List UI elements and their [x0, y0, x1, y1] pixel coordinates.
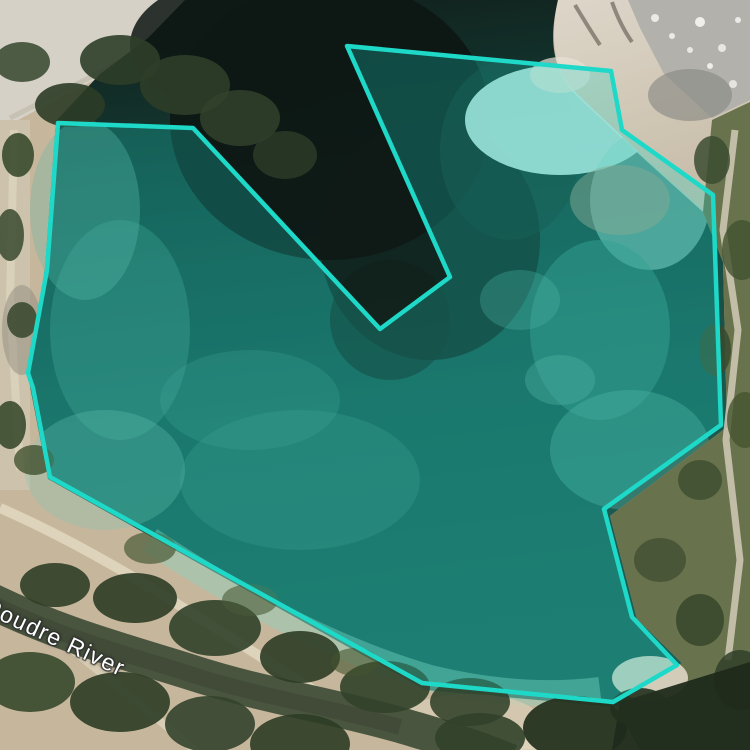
map-canvas[interactable]: Poudre River: [0, 0, 750, 750]
annotation-polygon[interactable]: [28, 46, 721, 702]
annotation-layer: [0, 0, 750, 750]
